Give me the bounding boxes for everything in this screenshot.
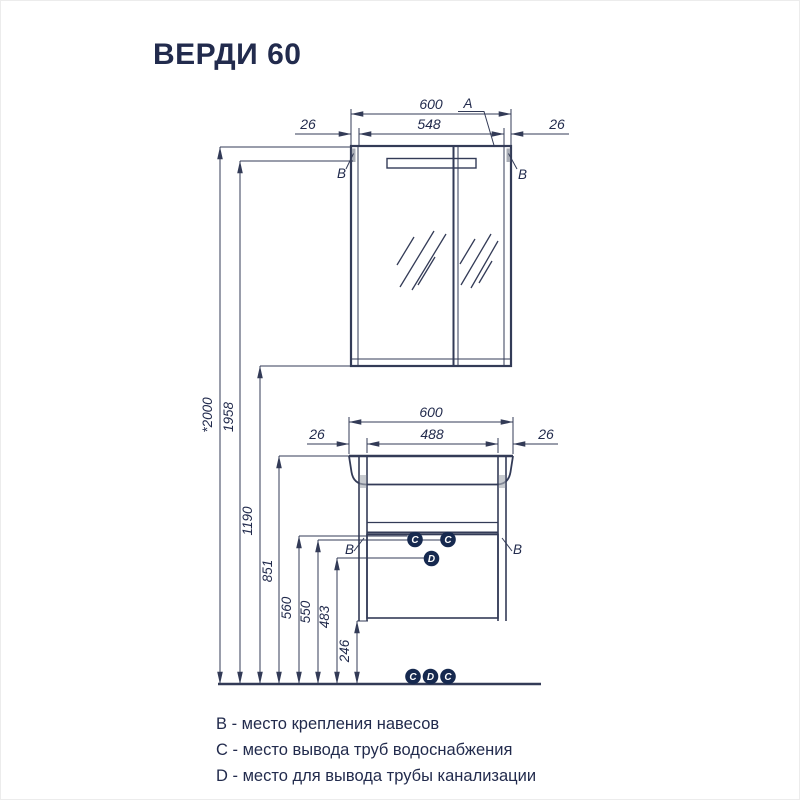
- svg-text:C: C: [409, 672, 417, 683]
- dim-height-851: 851: [260, 560, 275, 583]
- vanity-drawing: B B C C D: [345, 456, 522, 621]
- legend-item-c: C - место вывода труб водоснабжения: [216, 741, 512, 759]
- label-b-top-left: B: [337, 166, 346, 181]
- dim-mirror-600: 600: [419, 96, 443, 112]
- label-a: A: [462, 96, 472, 111]
- svg-text:D: D: [428, 554, 435, 565]
- dim-vanity-26-right: 26: [537, 426, 554, 442]
- vanity-dimensions: 600 488 26 26: [307, 404, 558, 454]
- floor-pipe-markers: C D C: [405, 669, 456, 685]
- label-b-top-right: B: [518, 167, 527, 182]
- light-fixture: [387, 159, 476, 169]
- mirror-hatching: [397, 231, 498, 290]
- dim-height-560: 560: [279, 596, 294, 619]
- label-b-bottom-right: B: [513, 542, 522, 557]
- technical-drawing: ВЕРДИ 60 600 548: [1, 1, 799, 799]
- dim-height-1190: 1190: [240, 506, 255, 536]
- rail-bracket-right: [499, 475, 506, 488]
- rail-bracket-left: [360, 475, 367, 488]
- dim-height-246: 246: [337, 639, 352, 663]
- dim-mirror-548: 548: [417, 116, 441, 132]
- height-dimensions: *2000 1958 1190 851 560 550 483 246: [200, 147, 441, 684]
- washbasin: [349, 456, 513, 485]
- dim-vanity-26-left: 26: [308, 426, 325, 442]
- svg-text:C: C: [444, 535, 452, 546]
- dim-vanity-600: 600: [419, 404, 443, 420]
- svg-text:C: C: [411, 535, 419, 546]
- dim-height-2000: *2000: [200, 397, 215, 433]
- dim-mirror-26-left: 26: [299, 116, 316, 132]
- svg-text:D: D: [427, 672, 434, 683]
- page-title: ВЕРДИ 60: [153, 38, 301, 71]
- dim-vanity-488: 488: [420, 426, 444, 442]
- pipe-markers: C C D: [407, 532, 456, 567]
- dim-height-1958: 1958: [221, 401, 236, 432]
- drawer-front: [367, 535, 498, 619]
- drawing-page: ВЕРДИ 60 600 548: [0, 0, 800, 800]
- dim-mirror-26-right: 26: [548, 116, 565, 132]
- legend: B - место крепления навесов C - место вы…: [216, 715, 536, 785]
- label-a-leader: [458, 112, 495, 148]
- mirror-cabinet-dimensions: 600 548 26 26 A B B: [295, 96, 569, 182]
- label-b-bottom-left: B: [345, 542, 354, 557]
- svg-text:C: C: [444, 672, 452, 683]
- legend-item-b: B - место крепления навесов: [216, 715, 439, 733]
- dim-height-483: 483: [317, 605, 332, 628]
- mirror-cabinet-drawing: [351, 146, 511, 366]
- dim-height-550: 550: [298, 600, 313, 623]
- legend-item-d: D - место для вывода трубы канализации: [216, 767, 536, 785]
- floor: C D C: [218, 669, 541, 685]
